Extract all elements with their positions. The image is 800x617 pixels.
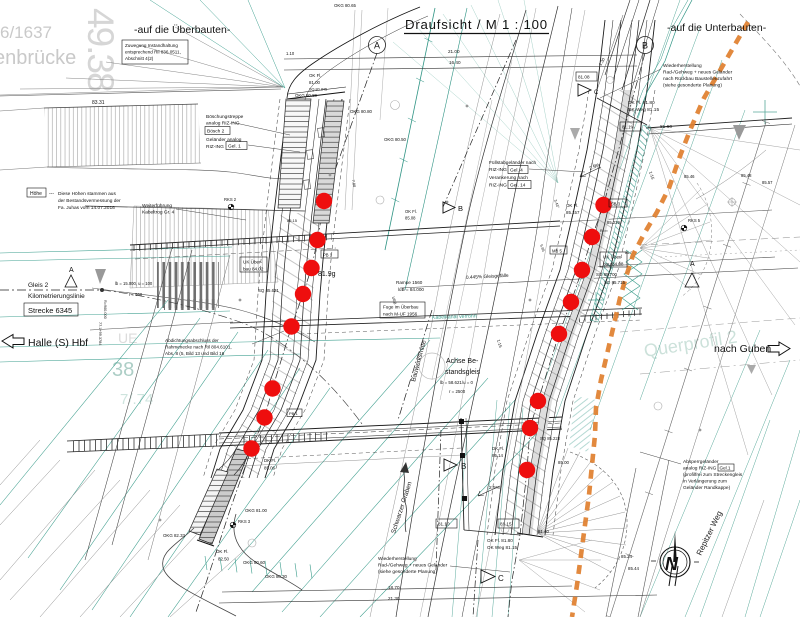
svg-text:A: A xyxy=(69,267,74,274)
svg-text:Gel. 4: Gel. 4 xyxy=(510,168,523,174)
svg-text:Gleis 2: Gleis 2 xyxy=(28,282,49,289)
svg-text:38: 38 xyxy=(112,359,134,381)
svg-text:r = 960: r = 960 xyxy=(129,292,143,297)
svg-text:C: C xyxy=(498,574,504,583)
svg-text:85.24: 85.24 xyxy=(621,554,633,559)
svg-text:OK Fl.: OK Fl. xyxy=(216,549,228,554)
svg-text:49.38: 49.38 xyxy=(80,8,121,91)
svg-text:nach M-UF 1956: nach M-UF 1956 xyxy=(383,312,418,317)
svg-text:Achse Be-: Achse Be- xyxy=(446,358,479,365)
svg-text:DK Fl.: DK Fl. xyxy=(492,446,504,451)
svg-text:SB 3: SB 3 xyxy=(611,202,621,207)
svg-text:7/.74: 7/.74 xyxy=(120,391,153,408)
svg-text:85.14: 85.14 xyxy=(492,453,504,458)
svg-text:enbrücke: enbrücke xyxy=(0,47,76,69)
svg-text:OKG 80.65: OKG 80.65 xyxy=(334,3,357,8)
svg-text:Kabeltrog Gr. 4: Kabeltrog Gr. 4 xyxy=(142,210,175,216)
svg-text:85.44: 85.44 xyxy=(628,566,640,571)
svg-text:1.10: 1.10 xyxy=(286,51,295,56)
svg-text:standsgleis: standsgleis xyxy=(445,369,481,376)
svg-text:SO 85.700: SO 85.700 xyxy=(596,272,618,277)
svg-text:81.15: 81.15 xyxy=(500,522,512,527)
svg-text:OK Fl. 81.80: OK Fl. 81.80 xyxy=(487,538,513,543)
svg-text:85.00: 85.00 xyxy=(558,460,570,465)
svg-text:Absperrgeländer: Absperrgeländer xyxy=(683,459,719,465)
svg-text:85.239: 85.239 xyxy=(607,220,620,225)
svg-text:nach Guben: nach Guben xyxy=(714,343,771,355)
svg-text:85.157: 85.157 xyxy=(566,210,580,215)
svg-text:Weiterführung: Weiterführung xyxy=(142,203,172,209)
svg-text:PB 1: PB 1 xyxy=(289,411,298,416)
svg-text:luB = 84.000: luB = 84.000 xyxy=(398,287,424,292)
svg-text:Strecke 6345: Strecke 6345 xyxy=(28,306,72,315)
svg-text:analog RIZ-ING: analog RIZ-ING xyxy=(206,121,240,127)
svg-text:85.08: 85.08 xyxy=(405,216,416,221)
svg-text:Füllstabgeländer nach: Füllstabgeländer nach xyxy=(489,160,537,166)
svg-text:PB 1: PB 1 xyxy=(323,253,333,258)
svg-text:nach Rückbau Baustellenzufahrt: nach Rückbau Baustellenzufahrt xyxy=(663,76,733,82)
svg-text:MB 5: MB 5 xyxy=(552,249,562,254)
svg-text:Rahmenecke nach Ril 804.6101,: Rahmenecke nach Ril 804.6101, xyxy=(165,345,232,350)
svg-text:Fa. Juhas vom 14.07.2016: Fa. Juhas vom 14.07.2016 xyxy=(58,205,115,211)
svg-text:Verankerung nach: Verankerung nach xyxy=(489,175,528,181)
svg-text:B: B xyxy=(458,204,463,213)
svg-text:B: B xyxy=(642,41,648,51)
svg-text:RIZ-ING: RIZ-ING xyxy=(489,183,507,189)
svg-text:Geländer analog: Geländer analog xyxy=(206,137,242,143)
svg-text:Abdichtungsabschluss der: Abdichtungsabschluss der xyxy=(165,338,219,343)
svg-text:SQ 80.845: SQ 80.845 xyxy=(309,88,327,92)
svg-text:OK Fl.: OK Fl. xyxy=(566,203,578,208)
svg-text:81.60: 81.60 xyxy=(538,529,550,534)
svg-text:Rad-/Gehweg + neues Geländer: Rad-/Gehweg + neues Geländer xyxy=(378,563,448,569)
svg-text:85.15: 85.15 xyxy=(287,218,298,223)
svg-text:Kilometrierungslinie: Kilometrierungslinie xyxy=(28,293,85,300)
svg-text:81.10: 81.10 xyxy=(438,522,450,527)
svg-text:lb = 58.621/u = 0: lb = 58.621/u = 0 xyxy=(440,380,474,385)
svg-text:Zuwegung Instandhaltung: Zuwegung Instandhaltung xyxy=(125,43,178,48)
svg-text:85.57: 85.57 xyxy=(762,180,773,185)
svg-text:OKG 80.60: OKG 80.60 xyxy=(243,560,266,565)
svg-text:SQ 85.621: SQ 85.621 xyxy=(258,288,280,293)
svg-text:UK Über-: UK Über- xyxy=(603,254,623,260)
svg-text:(profilfrei zum Streckengleis: (profilfrei zum Streckengleis xyxy=(683,472,743,478)
svg-text:Abs. 8 (5, Bild 13 und Bild 16: Abs. 8 (5, Bild 13 und Bild 16 xyxy=(165,351,225,356)
svg-text:in Verlängerung zum: in Verlängerung zum xyxy=(683,479,727,485)
svg-text:(siehe gesonderte Planung): (siehe gesonderte Planung) xyxy=(378,569,437,575)
svg-text:OKG 81.00: OKG 81.00 xyxy=(245,508,268,513)
svg-text:analog RiZ-ING: analog RiZ-ING xyxy=(683,466,717,472)
svg-text:Halle (S) Hbf: Halle (S) Hbf xyxy=(28,337,88,349)
svg-text:OKG 80.80: OKG 80.80 xyxy=(295,93,318,98)
svg-text:Rampe 1560: Rampe 1560 xyxy=(396,280,423,285)
svg-text:Wiederherstellung: Wiederherstellung xyxy=(378,556,417,562)
svg-text:16.40: 16.40 xyxy=(449,60,461,65)
svg-text:A: A xyxy=(374,41,380,51)
svg-text:RKS 2: RKS 2 xyxy=(224,197,237,202)
svg-text:DK Fl. 81.80: DK Fl. 81.80 xyxy=(628,100,655,106)
svg-text:85.46: 85.46 xyxy=(684,174,695,179)
svg-text:der Bestandsvermessung der: der Bestandsvermessung der xyxy=(58,198,121,204)
svg-text:-auf die Überbauten-: -auf die Überbauten- xyxy=(134,24,231,36)
svg-text:UK Über-: UK Über- xyxy=(243,259,263,265)
svg-text:81.00: 81.00 xyxy=(309,80,321,85)
svg-text:18.70: 18.70 xyxy=(388,585,400,590)
svg-text:RKS 3: RKS 3 xyxy=(238,519,251,524)
svg-text:R=960.000: R=960.000 xyxy=(103,300,107,319)
svg-text:81.60: 81.60 xyxy=(660,124,672,130)
svg-text:SO 85.715: SO 85.715 xyxy=(604,280,626,285)
svg-text:77.1+99.3784: 77.1+99.3784 xyxy=(98,322,102,345)
svg-text:Abschnitt 4(2): Abschnitt 4(2) xyxy=(125,56,154,61)
svg-text:OKG 82.33: OKG 82.33 xyxy=(163,533,186,538)
svg-text:RIZ-ING: RIZ-ING xyxy=(206,144,224,150)
svg-text:r = 2500: r = 2500 xyxy=(449,389,466,394)
svg-text:6/1637: 6/1637 xyxy=(0,23,52,42)
svg-text:Fuge im Überbau: Fuge im Überbau xyxy=(383,304,419,310)
svg-text:OKG 80.80: OKG 80.80 xyxy=(350,109,373,114)
svg-text:RIZ-ING: RIZ-ING xyxy=(489,167,507,173)
svg-text:Gel.1: Gel.1 xyxy=(720,466,731,471)
svg-text:bau 84.02: bau 84.02 xyxy=(243,267,264,272)
svg-text:(siehe gesonderte Planung): (siehe gesonderte Planung) xyxy=(663,83,722,89)
svg-text:21.30: 21.30 xyxy=(388,596,400,601)
svg-text:OK Fl.: OK Fl. xyxy=(309,73,321,78)
svg-text:OK Weg 81.15: OK Weg 81.15 xyxy=(487,545,517,550)
svg-text:Bösch 2: Bösch 2 xyxy=(207,129,225,135)
svg-text:85.48: 85.48 xyxy=(741,173,752,178)
svg-text:B: B xyxy=(461,462,466,471)
svg-text:DK Fl.: DK Fl. xyxy=(264,458,276,463)
svg-text:81.1%: 81.1% xyxy=(622,125,635,130)
svg-text:OKG 80.30: OKG 80.30 xyxy=(265,574,288,579)
svg-text:---: --- xyxy=(49,191,54,197)
svg-text:81.08: 81.08 xyxy=(578,75,590,80)
svg-text:Wiederherstellung: Wiederherstellung xyxy=(663,63,702,69)
svg-text:21.00: 21.00 xyxy=(448,49,460,54)
svg-text:SQ 85.222: SQ 85.222 xyxy=(540,436,561,441)
svg-text:A: A xyxy=(690,261,695,268)
svg-text:Gel. 1: Gel. 1 xyxy=(228,144,241,150)
svg-text:OK Fl.: OK Fl. xyxy=(405,209,417,214)
svg-text:DK Weg 81.15: DK Weg 81.15 xyxy=(628,107,659,113)
svg-text:C: C xyxy=(594,90,599,96)
svg-text:83.31: 83.31 xyxy=(92,100,105,106)
svg-text:Gel. 14: Gel. 14 xyxy=(510,183,526,189)
svg-text:Geländer Randkappe): Geländer Randkappe) xyxy=(683,485,731,491)
svg-text:lb = 15.000, u = 100: lb = 15.000, u = 100 xyxy=(115,281,153,286)
svg-text:Draufsicht / M 1 : 100: Draufsicht / M 1 : 100 xyxy=(405,17,548,32)
svg-text:R=∞: R=∞ xyxy=(600,229,608,233)
svg-text:Rad-/Gehweg + neues Geländer: Rad-/Gehweg + neues Geländer xyxy=(663,70,733,76)
svg-text:UE: UE xyxy=(118,330,137,346)
svg-text:Böschungstreppe: Böschungstreppe xyxy=(206,114,244,120)
svg-text:OKG 80.50: OKG 80.50 xyxy=(384,137,407,142)
svg-text:Höhe: Höhe xyxy=(30,191,42,197)
svg-text:-auf die Unterbauten-: -auf die Unterbauten- xyxy=(667,22,767,34)
svg-text:entsprechend Ril 836.0511,: entsprechend Ril 836.0511, xyxy=(125,50,181,55)
svg-text:bau 84.08: bau 84.08 xyxy=(603,262,624,267)
svg-text:81.9g: 81.9g xyxy=(318,271,336,278)
svg-text:85.06: 85.06 xyxy=(264,466,276,471)
svg-text:RKS 5: RKS 5 xyxy=(688,218,701,223)
svg-text:Diese Höhen stammen aus: Diese Höhen stammen aus xyxy=(58,191,116,197)
svg-text:82.50: 82.50 xyxy=(218,557,230,562)
